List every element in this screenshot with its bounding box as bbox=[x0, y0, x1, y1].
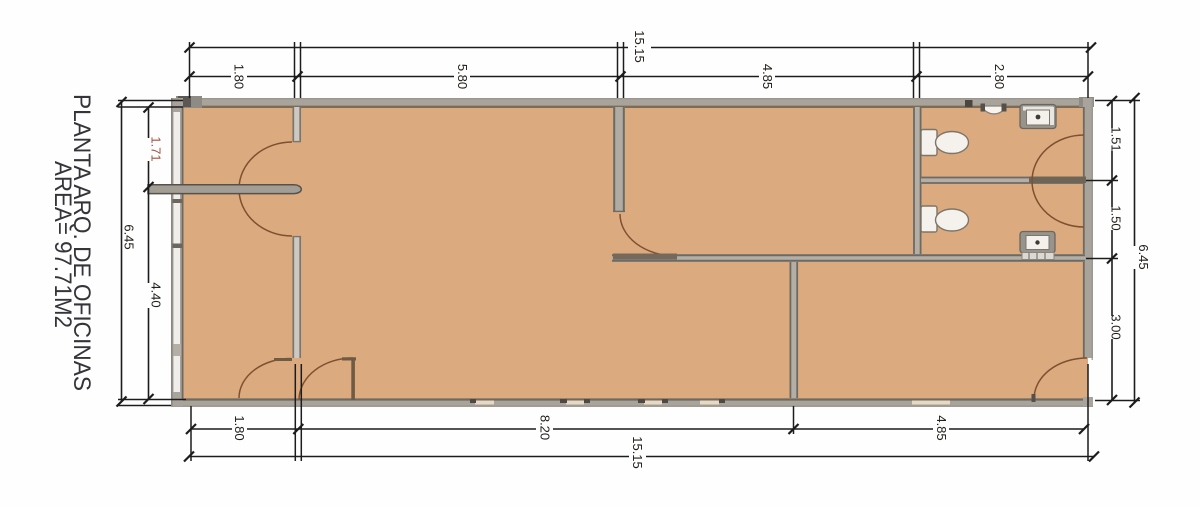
svg-text:6.45: 6.45 bbox=[1136, 244, 1151, 269]
svg-text:15.15: 15.15 bbox=[630, 436, 645, 469]
svg-text:4.85: 4.85 bbox=[760, 64, 775, 89]
svg-text:1.80: 1.80 bbox=[232, 415, 247, 440]
svg-text:1.51: 1.51 bbox=[1109, 126, 1124, 151]
svg-text:5.80: 5.80 bbox=[455, 64, 470, 89]
svg-text:3.00: 3.00 bbox=[1109, 314, 1124, 339]
svg-text:4.40: 4.40 bbox=[149, 282, 164, 307]
svg-text:15.15: 15.15 bbox=[632, 30, 647, 63]
svg-text:AREA= 97.71M2: AREA= 97.71M2 bbox=[49, 161, 76, 328]
svg-text:4.85: 4.85 bbox=[934, 415, 949, 440]
svg-text:1.80: 1.80 bbox=[232, 64, 247, 89]
svg-text:2.80: 2.80 bbox=[992, 64, 1007, 89]
svg-text:8.20: 8.20 bbox=[538, 415, 553, 440]
svg-text:6.45: 6.45 bbox=[122, 224, 137, 249]
svg-text:1.71: 1.71 bbox=[149, 136, 164, 161]
svg-text:1.50: 1.50 bbox=[1109, 205, 1124, 230]
